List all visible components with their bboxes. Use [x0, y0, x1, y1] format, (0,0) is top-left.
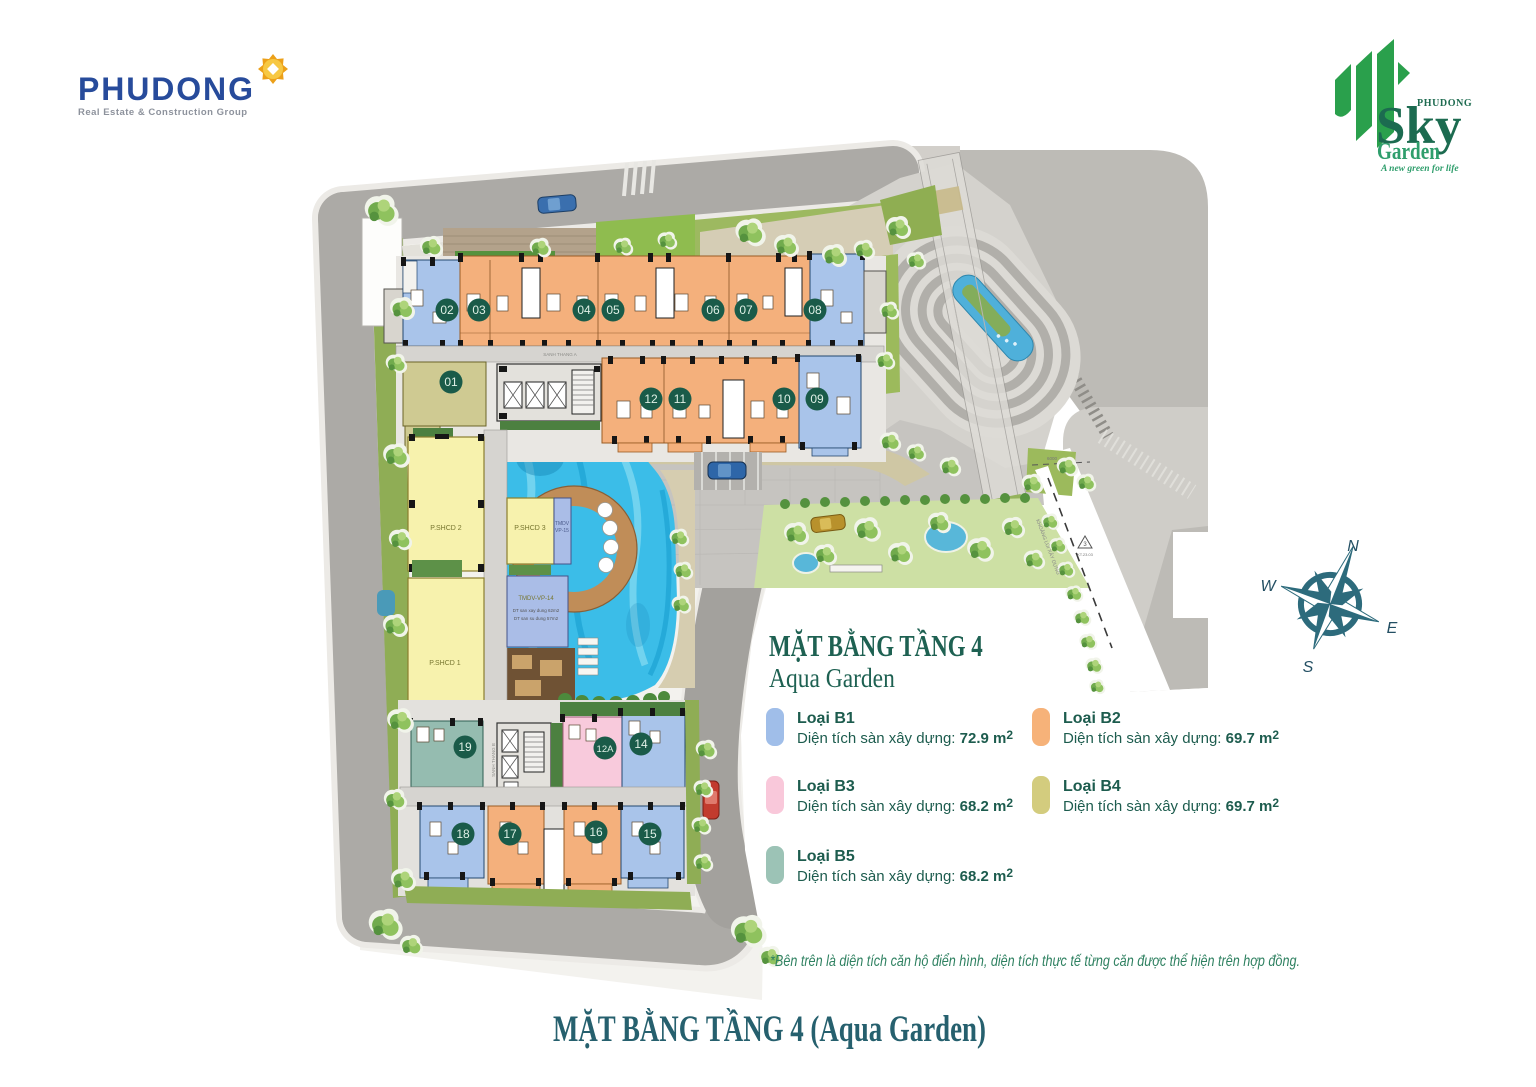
svg-text:S: S	[1303, 659, 1314, 676]
svg-text:Loại B3: Loại B3	[797, 778, 855, 795]
svg-text:12A: 12A	[597, 744, 615, 755]
svg-text:P.SHCD 2: P.SHCD 2	[430, 525, 461, 532]
svg-text:Aqua Garden: Aqua Garden	[769, 664, 895, 694]
svg-text:Loại B5: Loại B5	[797, 848, 855, 865]
svg-text:N: N	[1347, 538, 1359, 555]
svg-text:Real Estate & Construction Gro: Real Estate & Construction Group	[78, 107, 248, 118]
svg-text:MẶT BẰNG TẦNG 4: MẶT BẰNG TẦNG 4	[769, 628, 983, 663]
svg-text:Loại B4: Loại B4	[1063, 778, 1121, 795]
svg-text:Diện tích sàn xây dựng: 69.7 m: Diện tích sàn xây dựng: 69.7 m2	[1063, 796, 1279, 815]
svg-text:TMDV-VP-14: TMDV-VP-14	[518, 596, 554, 602]
svg-text:Loại B1: Loại B1	[797, 710, 855, 727]
svg-text:Diện tích sàn xây dựng: 72.9 m: Diện tích sàn xây dựng: 72.9 m2	[797, 728, 1013, 747]
svg-text:02: 02	[440, 303, 454, 317]
svg-text:TMDV: TMDV	[555, 521, 570, 527]
svg-text:P.SHCD 3: P.SHCD 3	[514, 525, 545, 532]
svg-text:12: 12	[644, 392, 658, 406]
svg-text:P.SHCD 1: P.SHCD 1	[429, 660, 460, 667]
svg-text:A new green for life: A new green for life	[1380, 164, 1459, 174]
svg-text:E: E	[1387, 620, 1398, 637]
svg-text:W: W	[1260, 578, 1277, 595]
svg-text:DT san su dung 57m2: DT san su dung 57m2	[514, 616, 559, 621]
svg-text:06: 06	[706, 303, 720, 317]
svg-text:Diện tích sàn xây dựng: 68.2 m: Diện tích sàn xây dựng: 68.2 m2	[797, 866, 1013, 885]
svg-text:07: 07	[739, 303, 753, 317]
svg-text:16: 16	[589, 825, 603, 839]
svg-text:SANH THANG A: SANH THANG A	[543, 352, 576, 357]
svg-text:15: 15	[643, 827, 657, 841]
svg-text:08: 08	[808, 303, 822, 317]
svg-text:18: 18	[456, 827, 470, 841]
svg-text:09: 09	[810, 392, 824, 406]
svg-text:10: 10	[777, 392, 791, 406]
svg-text:*Bên trên là diện tích căn hộ: *Bên trên là diện tích căn hộ điển hình,…	[770, 952, 1300, 970]
svg-text:SANH THANG B: SANH THANG B	[491, 743, 496, 777]
svg-text:05: 05	[606, 303, 620, 317]
svg-text:01: 01	[444, 375, 458, 389]
svg-text:6000: 6000	[1047, 456, 1058, 461]
svg-text:04: 04	[577, 303, 591, 317]
svg-text:14: 14	[634, 737, 648, 751]
svg-text:Diện tích sàn xây dựng: 68.2 m: Diện tích sàn xây dựng: 68.2 m2	[797, 796, 1013, 815]
svg-text:17: 17	[503, 827, 517, 841]
svg-text:PHUDONG: PHUDONG	[78, 71, 255, 107]
svg-text:Diện tích sàn xây dựng: 69.7 m: Diện tích sàn xây dựng: 69.7 m2	[1063, 728, 1279, 747]
svg-text:MẶT BẰNG TẦNG 4 (Aqua Garden): MẶT BẰNG TẦNG 4 (Aqua Garden)	[553, 1008, 986, 1049]
svg-text:11: 11	[674, 392, 687, 406]
svg-text:Garden: Garden	[1377, 138, 1440, 165]
svg-text:19: 19	[458, 740, 472, 754]
svg-text:VP-15: VP-15	[555, 528, 569, 534]
svg-text:DT san xay dung 62m2: DT san xay dung 62m2	[513, 608, 560, 613]
svg-text:03: 03	[472, 303, 486, 317]
svg-text:KT.23.03: KT.23.03	[1077, 552, 1094, 557]
svg-text:Loại B2: Loại B2	[1063, 710, 1121, 727]
